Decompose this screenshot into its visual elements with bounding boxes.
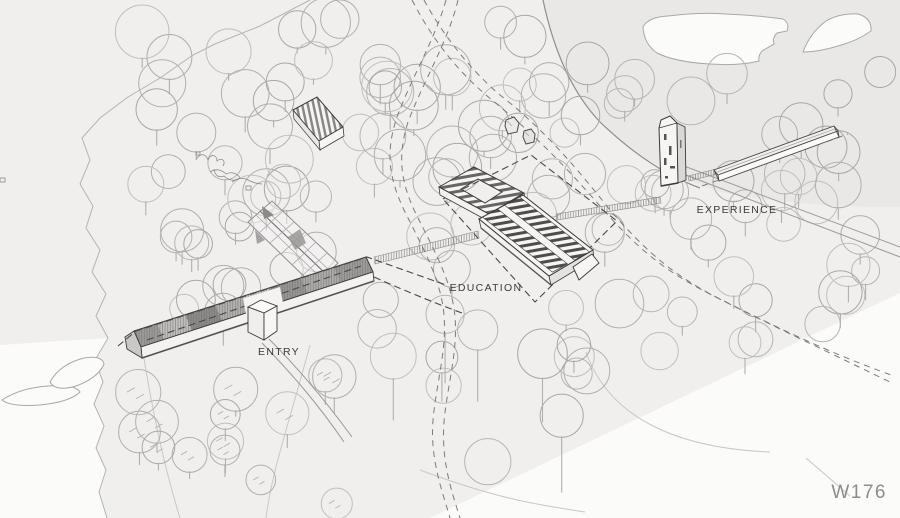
background-regions xyxy=(0,0,900,518)
entry-label: ENTRY xyxy=(258,346,300,358)
education-label: EDUCATION xyxy=(450,282,523,294)
experience-tower xyxy=(659,116,686,186)
site-plan-canvas: ENTRY EDUCATION EXPERIENCE W176 xyxy=(0,0,900,518)
sheet-code: W176 xyxy=(831,482,887,504)
experience-label: EXPERIENCE xyxy=(697,204,778,216)
site-drawing xyxy=(0,0,900,518)
